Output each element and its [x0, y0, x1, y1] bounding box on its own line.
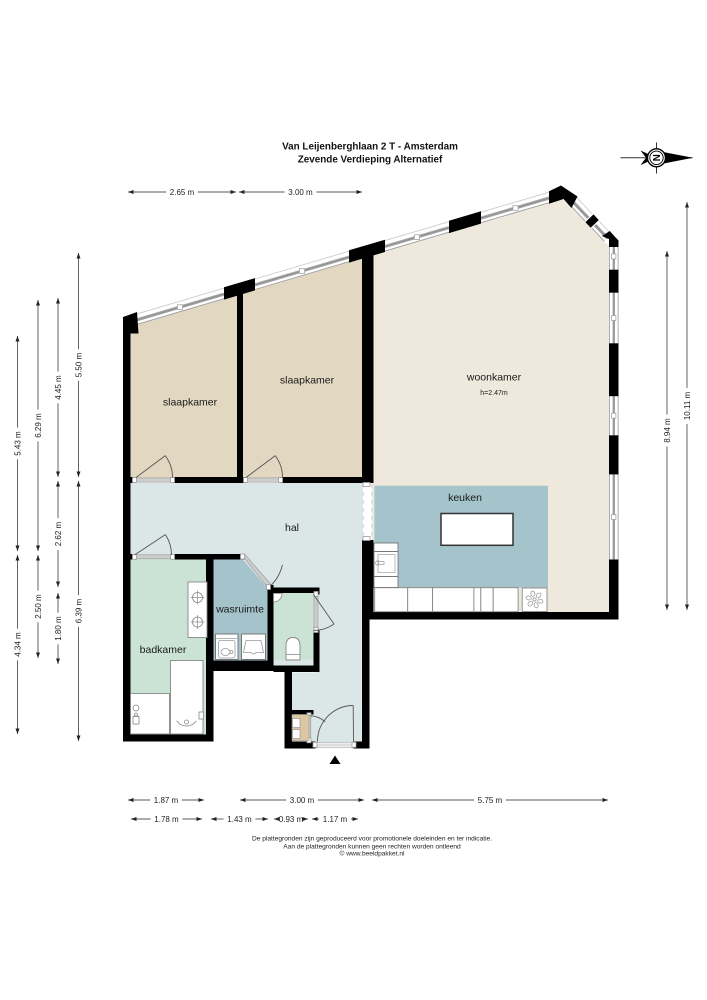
- svg-text:N: N: [650, 154, 661, 161]
- svg-text:hal: hal: [285, 522, 299, 534]
- svg-text:6.39 m: 6.39 m: [74, 598, 83, 623]
- svg-text:2.50 m: 2.50 m: [34, 594, 43, 619]
- svg-text:De plattegronden zijn geproduc: De plattegronden zijn geproduceerd voor …: [252, 836, 492, 843]
- svg-text:1.80 m: 1.80 m: [54, 616, 63, 641]
- svg-text:0.93 m: 0.93 m: [279, 815, 304, 824]
- svg-text:Zevende Verdieping Alternatief: Zevende Verdieping Alternatief: [298, 155, 443, 166]
- svg-text:5.50 m: 5.50 m: [74, 352, 83, 377]
- svg-text:badkamer: badkamer: [140, 644, 187, 656]
- svg-text:2.62 m: 2.62 m: [54, 521, 63, 546]
- svg-text:Aan de plattegronden kunnen ge: Aan de plattegronden kunnen geen rechten…: [283, 844, 461, 851]
- svg-text:2.65 m: 2.65 m: [170, 188, 195, 197]
- svg-text:1.87 m: 1.87 m: [154, 796, 179, 805]
- svg-text:3.00 m: 3.00 m: [288, 188, 313, 197]
- svg-text:5.75 m: 5.75 m: [478, 796, 503, 805]
- svg-text:© www.beeldpakket.nl: © www.beeldpakket.nl: [340, 850, 406, 858]
- svg-text:3.00 m: 3.00 m: [290, 796, 315, 805]
- svg-text:slaapkamer: slaapkamer: [280, 375, 335, 387]
- svg-text:1.17 m: 1.17 m: [323, 815, 348, 824]
- svg-text:6.29 m: 6.29 m: [34, 413, 43, 438]
- svg-text:8.94 m: 8.94 m: [663, 418, 672, 443]
- svg-text:woonkamer: woonkamer: [466, 372, 522, 384]
- svg-text:slaapkamer: slaapkamer: [163, 397, 218, 409]
- svg-text:1.78 m: 1.78 m: [154, 815, 179, 824]
- svg-text:4.34 m: 4.34 m: [13, 632, 22, 657]
- svg-text:h=2.47m: h=2.47m: [480, 390, 508, 397]
- svg-text:4.45 m: 4.45 m: [54, 375, 63, 400]
- svg-text:1.43 m: 1.43 m: [227, 815, 252, 824]
- svg-text:10.11 m: 10.11 m: [683, 392, 692, 421]
- svg-text:keuken: keuken: [448, 492, 482, 504]
- svg-text:wasruimte: wasruimte: [215, 604, 264, 616]
- svg-text:Van Leijenberghlaan 2 T - Amst: Van Leijenberghlaan 2 T - Amsterdam: [282, 142, 458, 153]
- svg-text:5.43 m: 5.43 m: [13, 431, 22, 456]
